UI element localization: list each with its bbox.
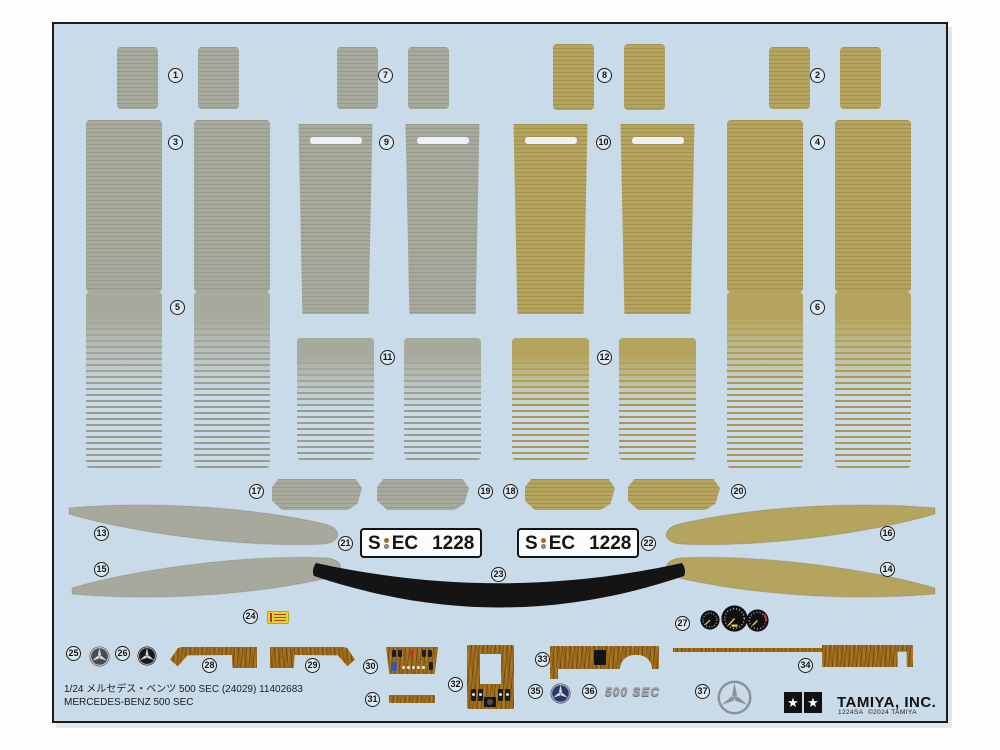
- decal-cushion-gray-rear-b: [194, 292, 270, 468]
- part-number-12: 12: [597, 350, 612, 365]
- tamiya-star-icon: ★: [784, 692, 802, 713]
- part-number-13: 13: [94, 526, 109, 541]
- decal-door-insert-gray-b: [377, 479, 469, 510]
- mercedes-star-black-icon: [137, 646, 157, 666]
- part-number-5: 5: [170, 300, 185, 315]
- decal-headrest-tan-b: [624, 44, 665, 110]
- photo-background: S EC 1228 S EC 1228: [0, 0, 1000, 750]
- part-number-37: 37: [695, 684, 710, 699]
- part-number-35: 35: [528, 684, 543, 699]
- brand-copyright: ©2024 TAMIYA: [868, 709, 917, 716]
- part-number-28: 28: [202, 658, 217, 673]
- part-number-24: 24: [243, 609, 258, 624]
- plate-prefix: S: [368, 534, 381, 553]
- decal-warning-label: [267, 611, 289, 624]
- warning-label-stripe: [270, 613, 272, 622]
- part-number-33: 33: [535, 652, 550, 667]
- decal-headrest-tan-c: [769, 47, 810, 109]
- decal-door-insert-tan-a: [525, 479, 615, 510]
- part-number-31: 31: [365, 692, 380, 707]
- decal-headrest-gray-b: [198, 47, 239, 109]
- decal-shelf-blade-tan-lower: [652, 552, 937, 604]
- decal-500sec-emblem: 500 SEC: [605, 686, 660, 698]
- part-number-11: 11: [380, 350, 395, 365]
- part-number-3: 3: [168, 135, 183, 150]
- decal-cushion-tan-front-a: [512, 338, 589, 460]
- decal-tachometer-icon: [746, 609, 769, 632]
- decal-wood-side-trim-strip: [673, 648, 823, 652]
- decal-wood-dashboard: [550, 646, 659, 669]
- decal-wood-side-trim-block: [822, 645, 913, 667]
- dashboard-left-stub: [550, 667, 558, 679]
- decal-shelf-blade-tan-upper: [652, 498, 937, 550]
- part-number-30: 30: [363, 659, 378, 674]
- part-number-10: 10: [596, 135, 611, 150]
- decal-seatback-gray-front-b: [404, 124, 481, 314]
- blue-switch-icon: [391, 662, 397, 671]
- console-cutout: [480, 654, 501, 684]
- decal-cushion-tan-rear-a: [727, 292, 803, 468]
- decal-shelf-blade-gray-upper: [67, 498, 352, 550]
- decal-wood-strip: [389, 695, 435, 703]
- decal-headrest-tan-a: [553, 44, 594, 110]
- headrest-slot: [310, 137, 362, 144]
- part-number-21: 21: [338, 536, 353, 551]
- decal-cushion-tan-rear-b: [835, 292, 911, 468]
- mercedes-star-blue-icon: [550, 683, 571, 704]
- decal-license-plate-left: S EC 1228: [360, 528, 482, 558]
- decal-headrest-gray-d: [408, 47, 449, 109]
- plate-seal-bottom-icon: [384, 544, 389, 549]
- decal-headrest-gray-a: [117, 47, 158, 109]
- part-number-8: 8: [597, 68, 612, 83]
- console-shifter-base: [484, 697, 496, 707]
- part-number-4: 4: [810, 135, 825, 150]
- plate-digits: 1228: [589, 534, 631, 553]
- part-number-20: 20: [731, 484, 746, 499]
- decal-cushion-gray-rear-a: [86, 292, 162, 468]
- decal-seatback-tan-rear-b: [835, 120, 911, 292]
- part-number-2: 2: [810, 68, 825, 83]
- plate-seal-top-icon: [384, 538, 389, 543]
- part-number-7: 7: [378, 68, 393, 83]
- decal-cushion-gray-front-b: [404, 338, 481, 460]
- part-number-19: 19: [478, 484, 493, 499]
- headrest-slot: [525, 137, 577, 144]
- plate-seal-top-icon: [541, 538, 546, 543]
- part-number-18: 18: [503, 484, 518, 499]
- part-number-27: 27: [675, 616, 690, 631]
- mercedes-star-ring-icon: [717, 680, 752, 715]
- decal-sheet: S EC 1228 S EC 1228: [52, 22, 948, 723]
- plate-seal-icons: [541, 538, 546, 549]
- warning-label-text-lines: [274, 614, 286, 622]
- decal-seatback-gray-rear-b: [194, 120, 270, 292]
- part-number-22: 22: [641, 536, 656, 551]
- plate-seal-icons: [384, 538, 389, 549]
- decal-speedometer-icon: [721, 605, 748, 632]
- decal-license-plate-right: S EC 1228: [517, 528, 639, 558]
- decal-headrest-gray-c: [337, 47, 378, 109]
- part-number-32: 32: [448, 677, 463, 692]
- red-switch-icon: [410, 650, 414, 657]
- part-number-36: 36: [582, 684, 597, 699]
- decal-wood-console: [467, 645, 514, 709]
- part-number-25: 25: [66, 646, 81, 661]
- brand-name: TAMIYA, INC.: [837, 695, 936, 710]
- dashboard-arch-cutout: [620, 655, 652, 669]
- part-number-14: 14: [880, 562, 895, 577]
- decal-seatback-tan-front-b: [619, 124, 696, 314]
- part-number-23: 23: [491, 567, 506, 582]
- decal-seatback-gray-rear-a: [86, 120, 162, 292]
- decal-cushion-tan-front-b: [619, 338, 696, 460]
- part-number-16: 16: [880, 526, 895, 541]
- part-number-26: 26: [115, 646, 130, 661]
- footer-kit-info: 1/24 メルセデス・ベンツ 500 SEC (24029) 11402683: [64, 684, 303, 696]
- decal-seatback-gray-front-a: [297, 124, 374, 314]
- decal-seatback-tan-front-a: [512, 124, 589, 314]
- part-number-34: 34: [798, 658, 813, 673]
- decal-seatback-tan-rear-a: [727, 120, 803, 292]
- part-number-6: 6: [810, 300, 825, 315]
- decal-gauge-small-icon: [700, 610, 720, 630]
- mercedes-star-dark-icon: [89, 646, 110, 667]
- part-number-1: 1: [168, 68, 183, 83]
- plate-prefix: S: [525, 534, 538, 553]
- part-number-17: 17: [249, 484, 264, 499]
- headrest-slot: [632, 137, 684, 144]
- footer-kit-name: MERCEDES-BENZ 500 SEC: [64, 697, 193, 709]
- plate-letters: EC: [549, 534, 575, 553]
- headrest-slot: [417, 137, 469, 144]
- part-number-9: 9: [379, 135, 394, 150]
- tamiya-star-icon: ★: [804, 692, 822, 713]
- part-number-15: 15: [94, 562, 109, 577]
- decal-cushion-gray-front-a: [297, 338, 374, 460]
- brand-code: 1224SA ©2024 TAMIYA: [838, 710, 917, 717]
- plate-seal-bottom-icon: [541, 544, 546, 549]
- plate-digits: 1228: [432, 534, 474, 553]
- decal-headrest-tan-d: [840, 47, 881, 109]
- plate-letters: EC: [392, 534, 418, 553]
- dashboard-clock-window: [594, 650, 606, 665]
- decal-wood-switch-panel: [385, 647, 439, 674]
- part-number-29: 29: [305, 658, 320, 673]
